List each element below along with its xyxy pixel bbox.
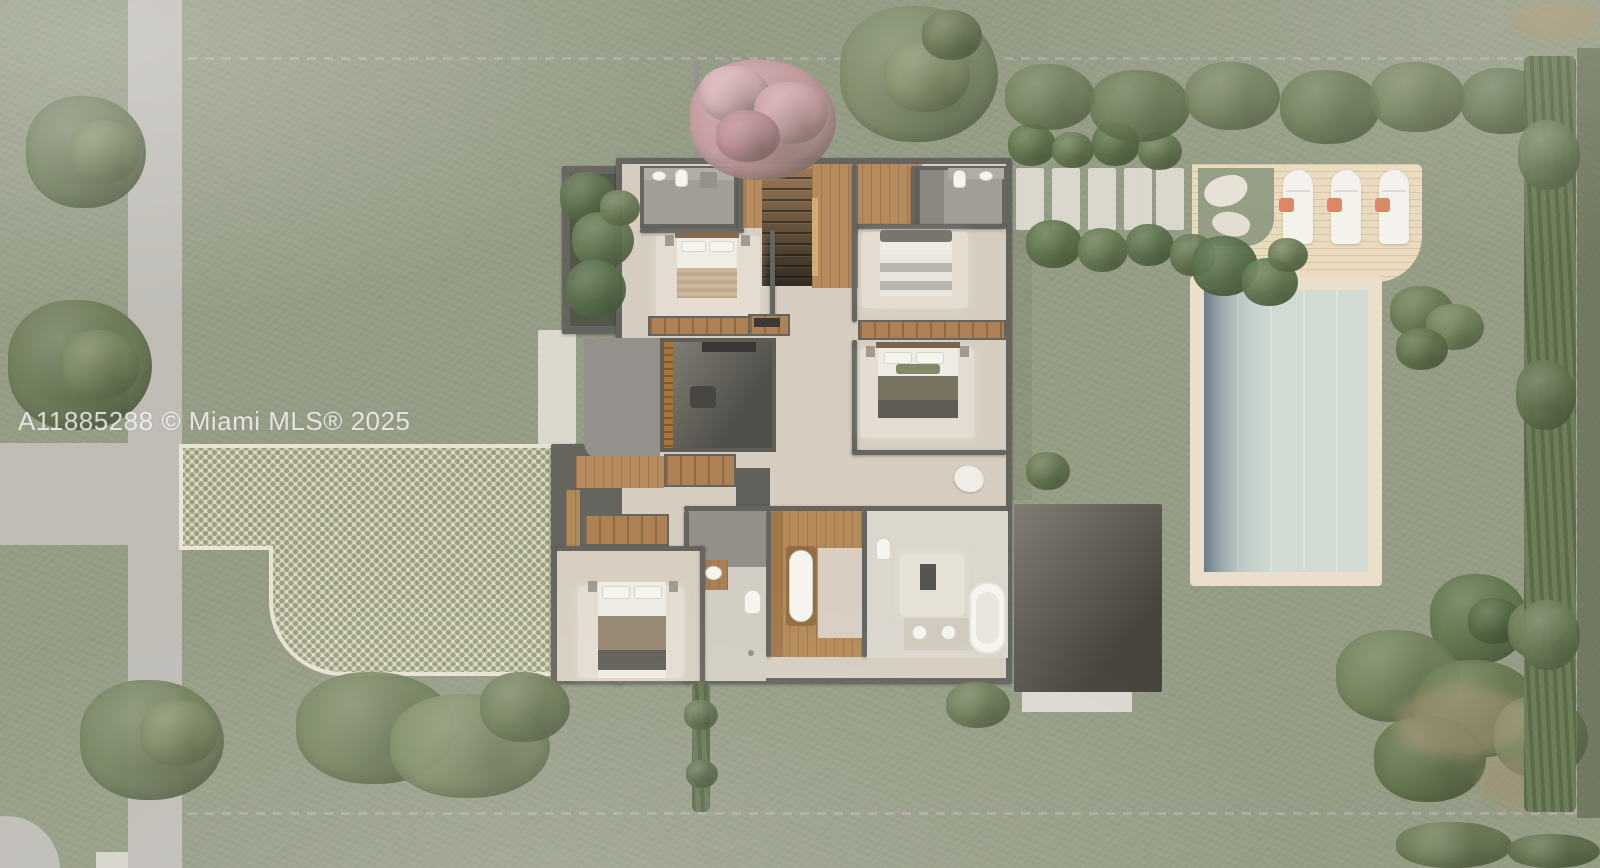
walkway-pad-5 — [1156, 168, 1184, 230]
bed-nw-blanket — [677, 268, 737, 298]
master-sink-left — [912, 625, 927, 640]
shower-nw — [700, 172, 717, 188]
wall-stair-east — [852, 164, 857, 322]
toilet-nw — [675, 169, 688, 187]
bed-ne-striped-blanket — [880, 254, 952, 296]
bush-pool-east-3 — [1396, 328, 1448, 370]
bench-horizontal — [576, 456, 664, 488]
wall-bedroom-mid-west — [852, 340, 857, 454]
toilet-ne — [953, 170, 966, 188]
bed-nw-pillow-right — [709, 241, 734, 252]
bed-mid-accent-pillow — [896, 364, 940, 374]
bush-south-line-1 — [1396, 822, 1512, 868]
sink-nw — [652, 171, 666, 181]
wall-left-bath-ne — [911, 166, 916, 228]
bathtub-inner — [976, 592, 999, 644]
media-table — [690, 386, 716, 408]
planter-plant-3 — [566, 260, 626, 318]
palm-walkway-s3 — [1126, 224, 1174, 266]
closet-shelving-west — [771, 511, 783, 657]
bed-mid-foot-throw — [878, 400, 958, 418]
bed-sw-pillow-right — [634, 586, 662, 599]
terrace — [584, 338, 660, 460]
hedge-ne-4 — [1280, 70, 1380, 144]
curb-pad — [96, 852, 128, 868]
walkway-pad-3 — [1088, 168, 1116, 230]
toilet-master — [876, 538, 891, 560]
media-tv-console — [702, 342, 756, 352]
hedge-ne-2 — [1090, 70, 1190, 142]
tree-northwest-crown — [70, 120, 140, 184]
garage-pad — [1022, 692, 1132, 712]
wardrobe-bedroom-nw — [648, 316, 760, 336]
lounger-cushion-1 — [1279, 198, 1294, 212]
hedge-below-blob-2 — [686, 760, 718, 788]
nightstand-sw-left — [588, 581, 597, 592]
wall-bedroom-mid-south — [852, 450, 1006, 455]
street-horizontal — [0, 443, 182, 545]
edge-shadow-east — [1577, 48, 1600, 818]
pool-water — [1204, 290, 1368, 572]
closet-inset-floor — [818, 548, 862, 638]
hedge-ne-3 — [1185, 62, 1280, 130]
media-room-wood-slats — [664, 342, 673, 448]
sink-south — [705, 566, 722, 580]
shower-ne — [920, 170, 944, 224]
nightstand-mid-left — [866, 346, 875, 357]
hall-wardrobe-south — [664, 454, 736, 487]
hedge-ne-5 — [1370, 62, 1465, 132]
bush-south-line-2 — [1508, 834, 1600, 868]
bush-house-south — [946, 682, 1010, 728]
stair-railing — [812, 198, 818, 276]
wardrobe-bedroom-sw — [583, 514, 669, 546]
sink-ne — [979, 171, 993, 181]
media-room — [660, 338, 776, 452]
master-sink-right — [941, 625, 956, 640]
planter-plant-4 — [600, 190, 640, 226]
pink-tree-blossom-3 — [716, 110, 780, 162]
bush-south-3 — [480, 672, 570, 742]
lounger-cushion-2 — [1327, 198, 1342, 212]
nightstand-mid-right — [960, 346, 969, 357]
bed-sw-pillow-left — [602, 586, 630, 599]
hall-tv — [754, 318, 780, 327]
mls-watermark: A11885288 © Miami MLS® 2025 — [18, 406, 410, 437]
wall-bedroom-sw-east — [700, 546, 705, 684]
palm-walkway-s1 — [1026, 220, 1082, 268]
bed-nw-pillow-left — [681, 241, 706, 252]
property-line-south — [188, 812, 1576, 815]
hedge-east-blob-2 — [1516, 360, 1576, 430]
hedge-below-blob-1 — [684, 700, 718, 730]
shower-drain — [748, 650, 754, 656]
bush-garage-north — [1026, 452, 1070, 490]
master-bath-shelf — [920, 564, 936, 590]
bed-sw-foot-throw — [598, 650, 666, 670]
tree-north-crown-2 — [922, 10, 982, 60]
floor-plan-site-rendering: A11885288 © Miami MLS® 2025 — [0, 0, 1600, 868]
entry-walk-pad — [538, 330, 576, 444]
lounger-cushion-3 — [1375, 198, 1390, 212]
street-corner-curve — [0, 816, 60, 868]
hedge-east-blob-3 — [1518, 600, 1580, 670]
bench-vertical — [566, 490, 580, 550]
bed-mid-pillow-left — [884, 352, 912, 364]
palm-walkway-n1 — [1008, 124, 1056, 166]
palm-walkway-n2 — [1052, 132, 1094, 168]
nightstand-nw-right — [741, 235, 750, 246]
nightstand-nw-left — [665, 235, 674, 246]
palm-walkway-s2 — [1078, 228, 1128, 272]
dirt-patch-ne — [1510, 0, 1600, 40]
closet-island-top — [789, 550, 813, 622]
garage-roof — [1014, 504, 1162, 692]
hedge-east-blob-1 — [1518, 120, 1580, 190]
wardrobe-bedroom-ne — [858, 320, 1006, 340]
tree-west-crown — [60, 330, 140, 400]
hedge-ne-1 — [1005, 64, 1095, 130]
dirt-patch-se-1 — [1396, 686, 1530, 758]
walkway-pad-4 — [1124, 168, 1152, 230]
tree-southwest-crown — [140, 700, 218, 766]
toilet-south — [744, 590, 761, 614]
deck-palm-3 — [1268, 238, 1308, 272]
hall-storage-dark — [736, 468, 770, 508]
bed-ne-pillows — [880, 230, 952, 242]
bed-mid-pillow-right — [916, 352, 944, 364]
nightstand-sw-right — [669, 581, 678, 592]
wall-below-bath-ne — [856, 224, 1006, 229]
driveway-lattice-b — [273, 448, 555, 672]
